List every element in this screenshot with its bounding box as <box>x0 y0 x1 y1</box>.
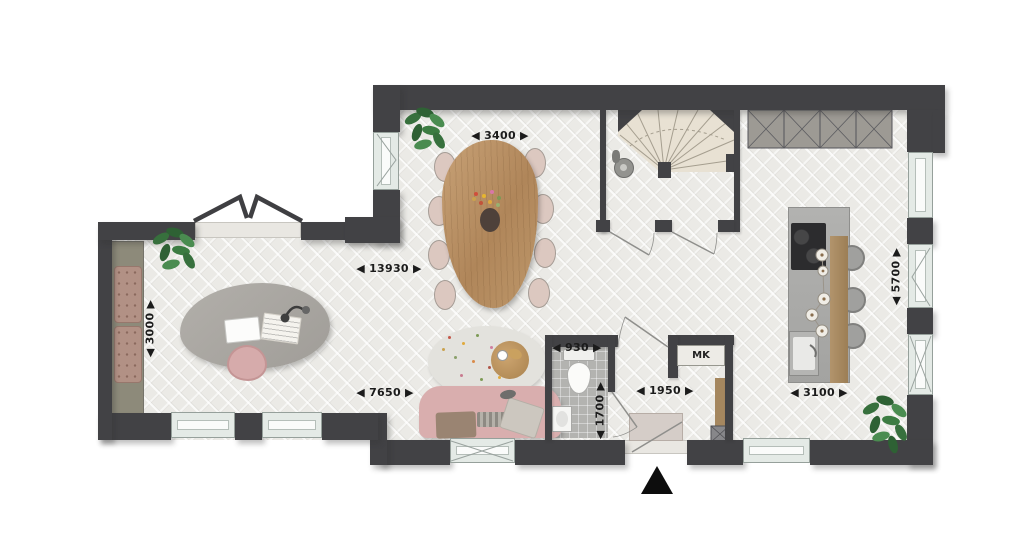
dining-chair <box>534 238 556 268</box>
window <box>373 132 399 190</box>
dimension-label-dining-width: ◀ 3400 ▶ <box>462 129 538 142</box>
side-table <box>491 341 529 379</box>
vacuum-robot <box>610 150 638 180</box>
outside-mask <box>90 83 373 222</box>
dimension-label-overall-width: ◀ 13930 ▶ <box>347 262 431 275</box>
dimension-label-kitchen-width: ◀ 3100 ▶ <box>781 386 857 399</box>
wall <box>235 413 262 440</box>
wall <box>373 85 400 132</box>
meter-closet-label: MK <box>692 350 710 361</box>
bench-cushion <box>114 266 142 323</box>
wall <box>687 440 743 465</box>
cooktop <box>791 223 826 270</box>
wall <box>907 308 933 334</box>
front-door-threshold <box>623 440 688 454</box>
wall <box>373 85 945 110</box>
window <box>908 334 933 395</box>
wall <box>907 218 933 244</box>
dining-chair <box>434 280 456 310</box>
doormat <box>629 413 683 441</box>
wall <box>933 110 945 153</box>
window <box>450 438 515 463</box>
dimension-label-hall-width: ◀ 1950 ▶ <box>627 384 703 397</box>
sofa-cushion <box>436 411 477 438</box>
basin-bowl <box>556 411 568 427</box>
rug-pattern <box>448 336 451 339</box>
dimension-label-wc-depth: ◀ 1700 ▶ <box>594 373 607 449</box>
bar-counter <box>830 236 848 383</box>
window <box>743 438 810 463</box>
coffee-cup <box>497 350 508 361</box>
window <box>171 412 235 438</box>
window <box>908 244 933 308</box>
wall <box>345 217 400 243</box>
plant <box>402 108 452 162</box>
window <box>908 152 933 218</box>
plant <box>150 228 202 282</box>
flower-vase <box>480 208 500 232</box>
stair-wall <box>600 110 606 232</box>
meter-closet: MK <box>677 345 725 366</box>
dimension-label-kitchen-depth: ◀ 5700 ▶ <box>890 239 903 315</box>
flowers <box>474 192 478 196</box>
hall-wall <box>725 335 733 440</box>
dining-chair <box>528 278 550 308</box>
floor-plan: MK ◀ 3400 ▶ ◀ 13930 ▶ ◀ 3000 ▶ ◀ 7650 ▶ <box>0 0 1024 558</box>
bench-cushion <box>114 326 142 383</box>
wall <box>322 413 378 440</box>
wall <box>378 440 450 465</box>
north-arrow <box>641 466 673 494</box>
wc-wall <box>608 335 615 392</box>
sink-basin <box>793 337 815 370</box>
stair-wall <box>718 220 734 232</box>
laptop <box>224 316 261 344</box>
dimension-label-living-width: ◀ 7650 ▶ <box>347 386 423 399</box>
wall <box>98 222 112 440</box>
papers <box>260 312 301 344</box>
dimension-label-study-depth: ◀ 3000 ▶ <box>144 291 157 367</box>
wall <box>515 440 625 465</box>
outside-mask <box>90 440 378 470</box>
wall <box>907 110 933 152</box>
desk-chair <box>227 345 267 381</box>
stair-wall <box>655 220 672 232</box>
plant <box>858 396 914 456</box>
dimension-label-wc-width: ◀ 930 ▶ <box>547 341 607 354</box>
folding-door-threshold <box>195 222 301 238</box>
window <box>262 412 322 438</box>
stair-wall <box>734 110 740 232</box>
stair-wall <box>596 220 610 232</box>
